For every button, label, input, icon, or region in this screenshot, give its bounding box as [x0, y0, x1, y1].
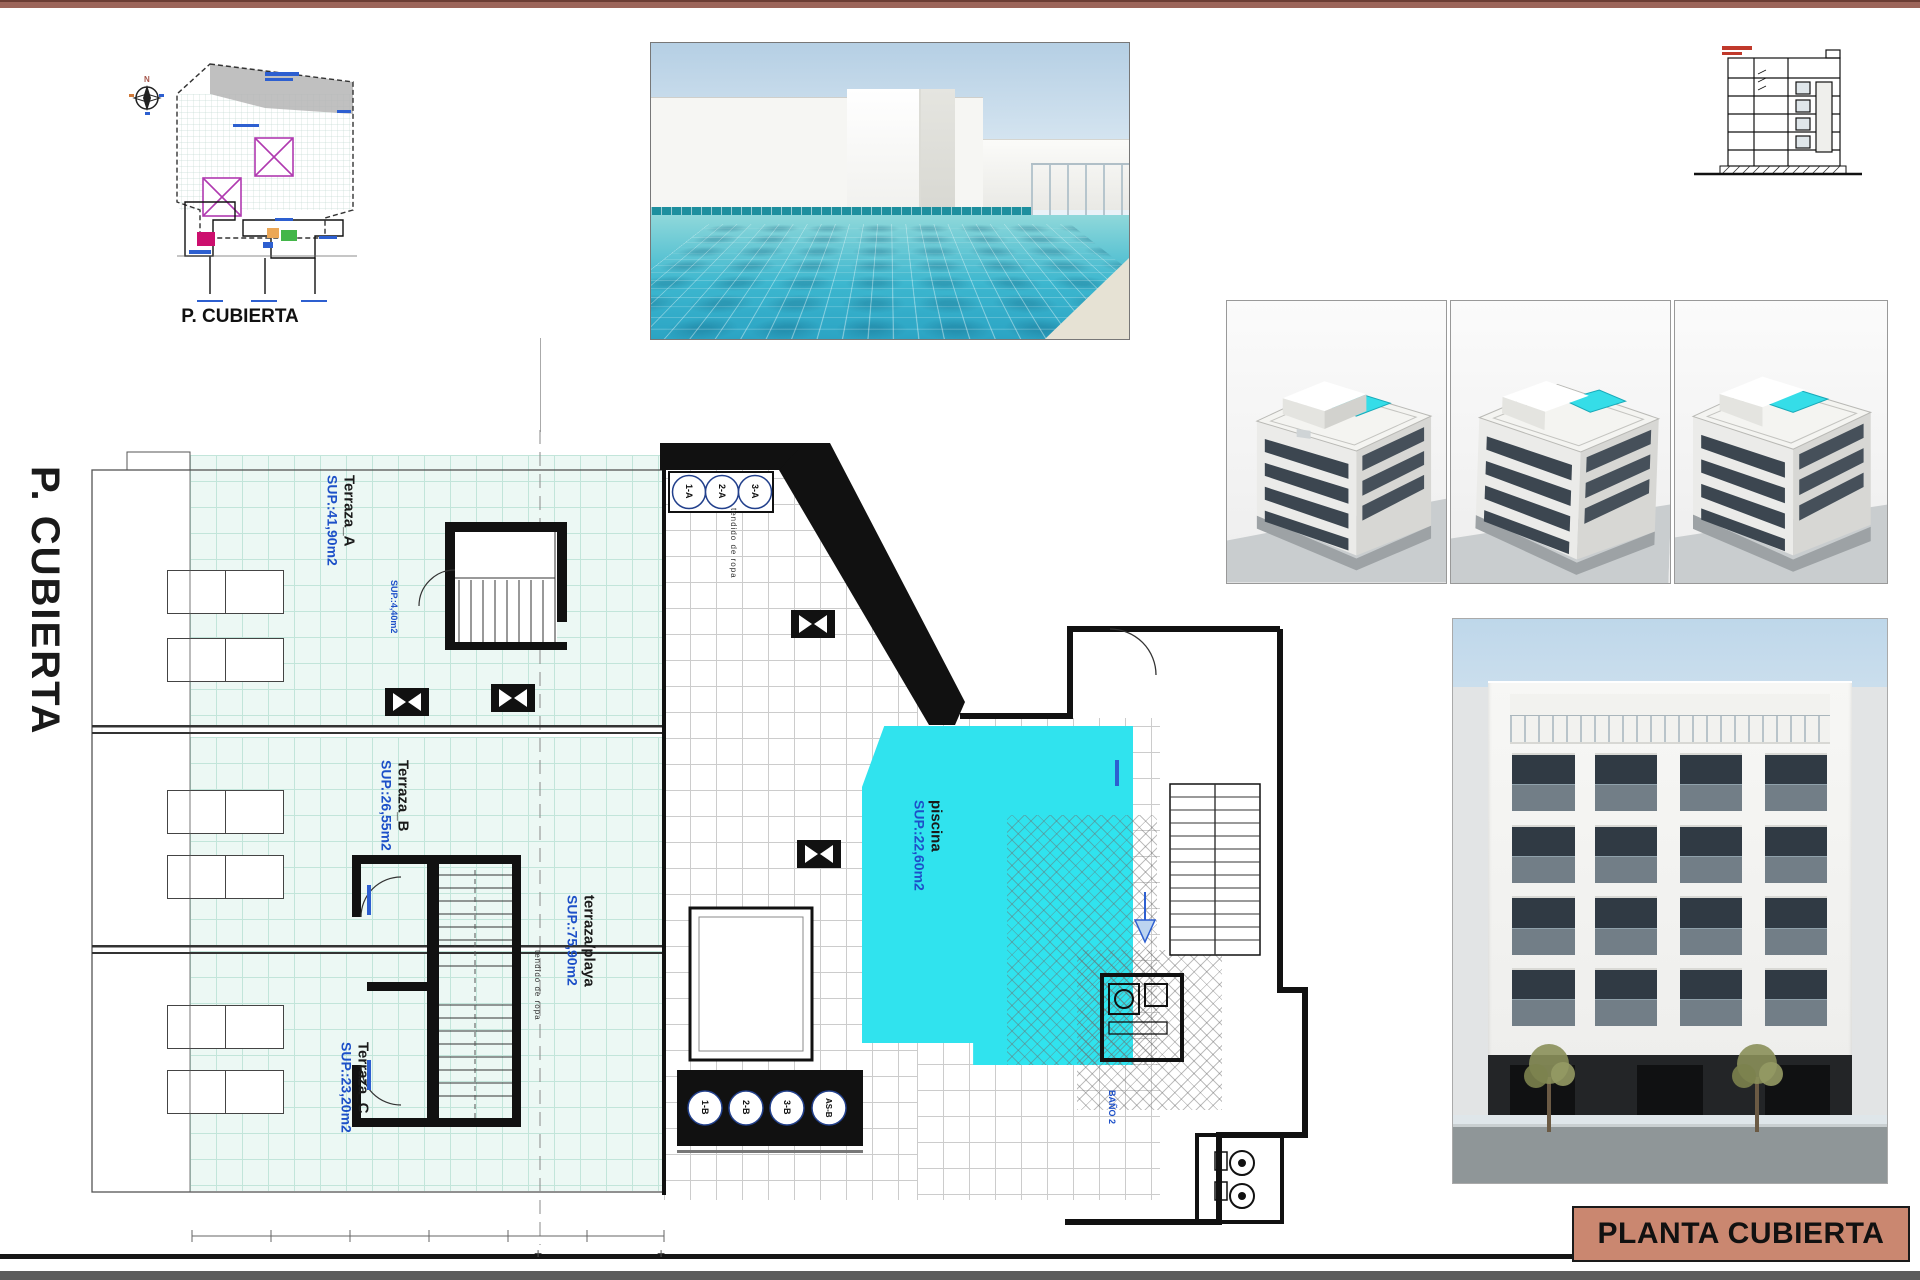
- section-ground: [1694, 166, 1862, 174]
- facade-window: [1595, 970, 1657, 1026]
- axon-building: [1674, 377, 1888, 584]
- balcony-railing: [1595, 856, 1657, 883]
- balcony-railing: [1595, 928, 1657, 955]
- svg-text:N: N: [144, 75, 150, 84]
- balcony-railing: [1765, 928, 1827, 955]
- stair-direction-arrow: [1135, 892, 1155, 942]
- terrace-b-area: SUP.:26,55m2: [379, 760, 394, 851]
- terrace-a-area: SUP.:41,90m2: [325, 475, 340, 566]
- balcony-railing: [1765, 856, 1827, 883]
- laundry-fixtures: [1109, 984, 1167, 1034]
- pool-label: SUP.:22,60m2 piscina: [912, 800, 943, 891]
- beach-terrace-label: SUP.:75,90m2 terraza/playa: [565, 895, 596, 987]
- section-drawing: [1692, 44, 1864, 186]
- key-plan: N: [115, 52, 365, 336]
- section-building: [1728, 50, 1840, 166]
- balcony-railing: [1595, 999, 1657, 1026]
- vent-label: 2-A: [717, 484, 727, 499]
- facade-ground-opening: [1637, 1065, 1703, 1115]
- facade-window: [1765, 755, 1827, 811]
- axon-render-2: [1450, 300, 1671, 584]
- vent-label: 1-B: [700, 1100, 710, 1115]
- facade-floor-row: [1506, 970, 1834, 1026]
- key-plan-compass-icon: N: [129, 75, 164, 115]
- terrace-a-stair: [419, 522, 567, 650]
- beach-terrace-name: terraza/playa: [581, 895, 597, 987]
- pool-render-photo: [650, 42, 1130, 340]
- vent-label: 3-B: [782, 1100, 792, 1115]
- stair-sup-label: SUP.:4,40m2: [389, 580, 399, 633]
- balcony-railing: [1680, 784, 1742, 811]
- vent-circles-bottom: 1-B 2-B 3-B AS-B: [677, 1070, 863, 1153]
- facade-window: [1765, 898, 1827, 954]
- facade-window: [1765, 827, 1827, 883]
- pool-render-tile-grid: [651, 224, 1129, 339]
- facade-attic-railing: [1510, 715, 1831, 742]
- pool-render-water: [651, 215, 1129, 339]
- balcony-railing: [1765, 784, 1827, 811]
- facade-window: [1512, 827, 1574, 883]
- projection-line: [540, 338, 541, 432]
- facade-window: [1765, 970, 1827, 1026]
- clothesline-label: tendido de ropa: [729, 508, 738, 579]
- pool-render-glass-railing: [1031, 163, 1129, 217]
- balcony-railing: [1512, 856, 1574, 883]
- dimension-line: [192, 1230, 664, 1242]
- balcony-railing: [1680, 928, 1742, 955]
- facade-render-photo: [1452, 618, 1888, 1184]
- facade-neighbor-left: [1453, 687, 1488, 1116]
- skylight-shaft: [690, 908, 812, 1060]
- facade-window: [1680, 827, 1742, 883]
- crosshair-mark: +: [657, 1246, 665, 1260]
- facade-floor-row: [1506, 827, 1834, 883]
- pool-area: SUP.:22,60m2: [912, 800, 927, 891]
- title-block: PLANTA CUBIERTA: [1572, 1206, 1910, 1262]
- facade-window: [1595, 755, 1657, 811]
- terrace-c-area: SUP.:23,20m2: [339, 1042, 354, 1133]
- terrace-b-label: SUP.:26,55m2 Terraza_B: [379, 760, 410, 851]
- vent-circles-top: 1-A 2-A 3-A: [669, 472, 773, 512]
- facade-window: [1595, 827, 1657, 883]
- drawing-sheet: PLANTA CUBIERTA P. CUBIERTA N: [0, 0, 1920, 1280]
- terrace-b-name: Terraza_B: [395, 760, 411, 851]
- sheet-side-title: P. CUBIERTA: [22, 466, 67, 736]
- crosshair-mark: +: [534, 1246, 542, 1260]
- section-red-label-mark: [1722, 46, 1752, 55]
- top-accent-bar: [0, 0, 1920, 8]
- terrace-c-name: Terraza_C: [355, 1042, 371, 1133]
- vent-label: 1-A: [684, 484, 694, 499]
- pool-name: piscina: [928, 800, 944, 891]
- pool-render-cube-side: [921, 89, 955, 211]
- vent-label: 2-B: [741, 1100, 751, 1115]
- facade-window: [1680, 898, 1742, 954]
- balcony-railing: [1512, 928, 1574, 955]
- terrace-c-label: SUP.:23,20m2 Terraza_C: [339, 1042, 370, 1133]
- axon-building: [1450, 378, 1671, 584]
- facade-street: [1453, 1124, 1887, 1183]
- facade-window: [1512, 970, 1574, 1026]
- bottom-rule-line: [0, 1254, 1574, 1259]
- pool-render-cube-front: [847, 89, 921, 211]
- tree-icon: [1722, 1022, 1792, 1132]
- bath-label: BAÑO 2: [1107, 1090, 1117, 1124]
- facade-window: [1680, 755, 1742, 811]
- clothesline-label: tendido de ropa: [533, 950, 542, 1021]
- central-stair-core: [352, 855, 521, 1127]
- facade-attic-level: [1510, 694, 1831, 744]
- facade-floor-row: [1506, 755, 1834, 811]
- plan-boundary: [92, 452, 664, 1192]
- facade-floor-row: [1506, 898, 1834, 954]
- facade-window: [1512, 755, 1574, 811]
- facade-window: [1512, 898, 1574, 954]
- vent-label: 3-A: [750, 484, 760, 499]
- axon-render-3: [1674, 300, 1888, 584]
- balcony-railing: [1595, 784, 1657, 811]
- tree-icon: [1514, 1022, 1584, 1132]
- balcony-railing: [1680, 856, 1742, 883]
- vent-label: AS-B: [824, 1098, 833, 1118]
- terrace-a-name: Terraza_A: [341, 475, 357, 566]
- facade-neighbor-right: [1852, 687, 1887, 1116]
- terrace-a-label: SUP.:41,90m2 Terraza_A: [325, 475, 356, 566]
- central-wall: [662, 443, 666, 1195]
- balcony-railing: [1512, 784, 1574, 811]
- facade-window: [1680, 970, 1742, 1026]
- beach-terrace-area: SUP.:75,90m2: [565, 895, 580, 987]
- right-service-zone: [960, 629, 1305, 1222]
- key-plan-drawing: N: [115, 52, 365, 302]
- bottom-gray-bar: [0, 1271, 1920, 1280]
- key-plan-caption: P. CUBIERTA: [115, 306, 365, 328]
- facade-window: [1595, 898, 1657, 954]
- roof-floor-plan: 1-A 2-A 3-A: [67, 430, 1397, 1245]
